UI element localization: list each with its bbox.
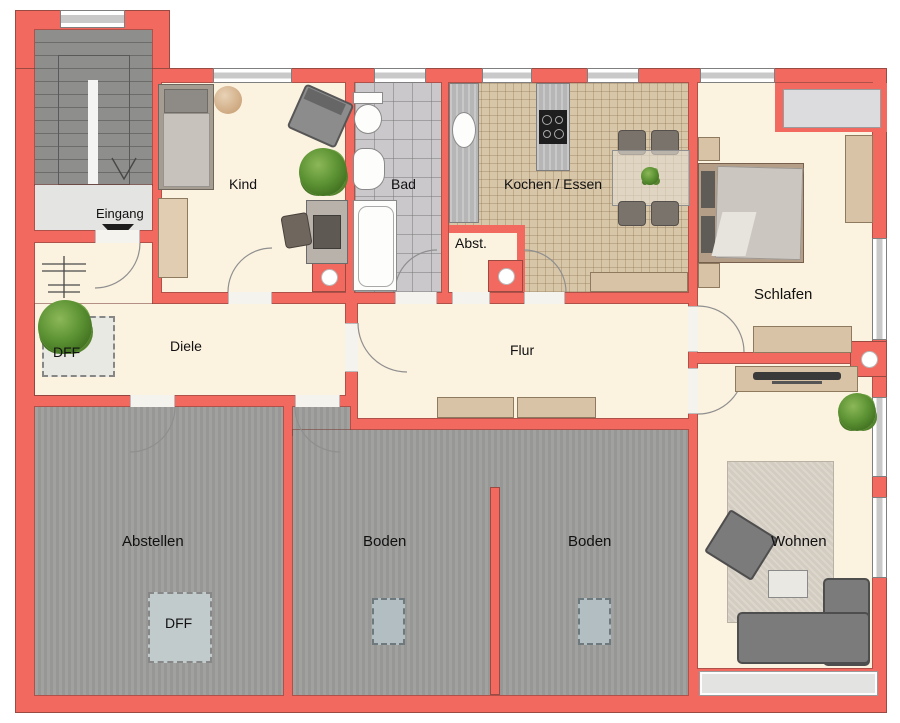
bad-bathtub [353,200,397,291]
door-schlafen-threshold [688,306,698,352]
staircase-direction-arrow [110,156,138,182]
schlafen-wardrobe [845,135,873,223]
window-schlafen-top [700,68,775,83]
kind-bed-pillow [164,89,208,113]
dining-table-plant [641,167,659,185]
door-schlafen-arc [698,306,745,353]
kind-bed [158,84,214,190]
kind-plant [299,148,347,196]
kitchen-cooktop [539,110,567,144]
window-kitchen-left [482,68,532,83]
door-kind-threshold [228,292,272,304]
window-wohnen-bottom-band [700,672,877,695]
flur-sideboard-left [437,397,514,418]
kitchen-counter-left [449,83,479,223]
window-bad [374,68,426,83]
bad-toilet-bowl [354,104,382,134]
bad-bathtub-inner [358,206,394,287]
skylight-label-diele: DFF [53,344,80,360]
room-label-bad: Bad [391,176,416,192]
door-boden-arc [295,407,341,453]
door-flur-arc [358,323,408,373]
kind-desk-chair [280,212,312,249]
diele-coat-rack [36,252,92,302]
kind-bed-mattress [163,113,210,187]
schlafen-bed-pillow-1 [701,171,715,208]
room-label-abstellen: Abstellen [122,533,184,550]
schlafen-nightstand-top [698,137,720,161]
wohnen-coffee-table [768,570,808,598]
flur-sideboard-right [517,397,596,418]
schlafen-niche [783,89,881,128]
dining-chair-3 [618,201,646,226]
door-abst-opening [452,292,490,304]
bad-toilet-tank [353,92,383,104]
schlafen-nightstand-bottom [698,263,720,288]
kind-ball [214,86,242,114]
room-label-wohnen: Wohnen [771,533,827,550]
dining-chair-4 [651,201,679,226]
door-kitchen-arc [524,250,567,293]
kitchen-sink [452,112,476,148]
door-kind-arc [228,248,273,293]
window-wohnen-right-lower [872,497,887,578]
staircase-stringer [88,80,98,184]
boden-divider-wall [490,487,500,695]
skylight-boden-right [578,598,611,645]
window-kind [213,68,292,83]
door-entrance-arc [95,243,141,289]
room-label-flur: Flur [510,342,534,358]
kind-desk-monitor [313,215,341,249]
schlafen-sideboard [753,326,852,353]
wohnen-tv-stand [772,381,822,384]
room-label-schlafen: Schlafen [754,286,812,303]
window-kitchen-right [587,68,639,83]
floor-plan: Eingang [0,0,900,723]
abst-top-wall [449,225,525,233]
door-abstellen-threshold [130,395,175,407]
room-label-abst: Abst. [455,235,487,251]
door-bad-threshold [395,292,437,304]
entrance-label: Eingang [96,206,144,221]
window-stairtower [60,10,125,28]
window-schlafen-right [872,238,887,340]
skylight-label-abstellen: DFF [165,615,192,631]
door-flur-threshold [345,323,358,372]
room-label-boden-left: Boden [363,533,406,550]
door-abstellen-arc [130,407,176,453]
room-label-diele: Diele [170,338,202,354]
door-bad-arc [395,250,438,293]
schlafen-bed [698,163,804,263]
wohnen-sofa-seat [737,612,870,664]
kitchen-sideboard [590,272,688,292]
room-label-boden-right: Boden [568,533,611,550]
kind-desk [306,200,348,264]
door-kitchen-threshold [524,292,565,304]
bad-sink [353,148,385,190]
skylight-boden-left [372,598,405,645]
wohnen-plant [838,393,876,431]
door-wohnen-threshold [688,368,698,414]
kind-bench [158,198,188,278]
door-entrance-threshold [95,230,140,243]
room-label-kind: Kind [229,176,257,192]
room-label-kochen: Kochen / Essen [504,176,602,192]
wohnen-tv [753,372,841,380]
chimney-kind [312,262,346,292]
chimney-abst [488,260,523,292]
door-boden-threshold [295,395,340,407]
